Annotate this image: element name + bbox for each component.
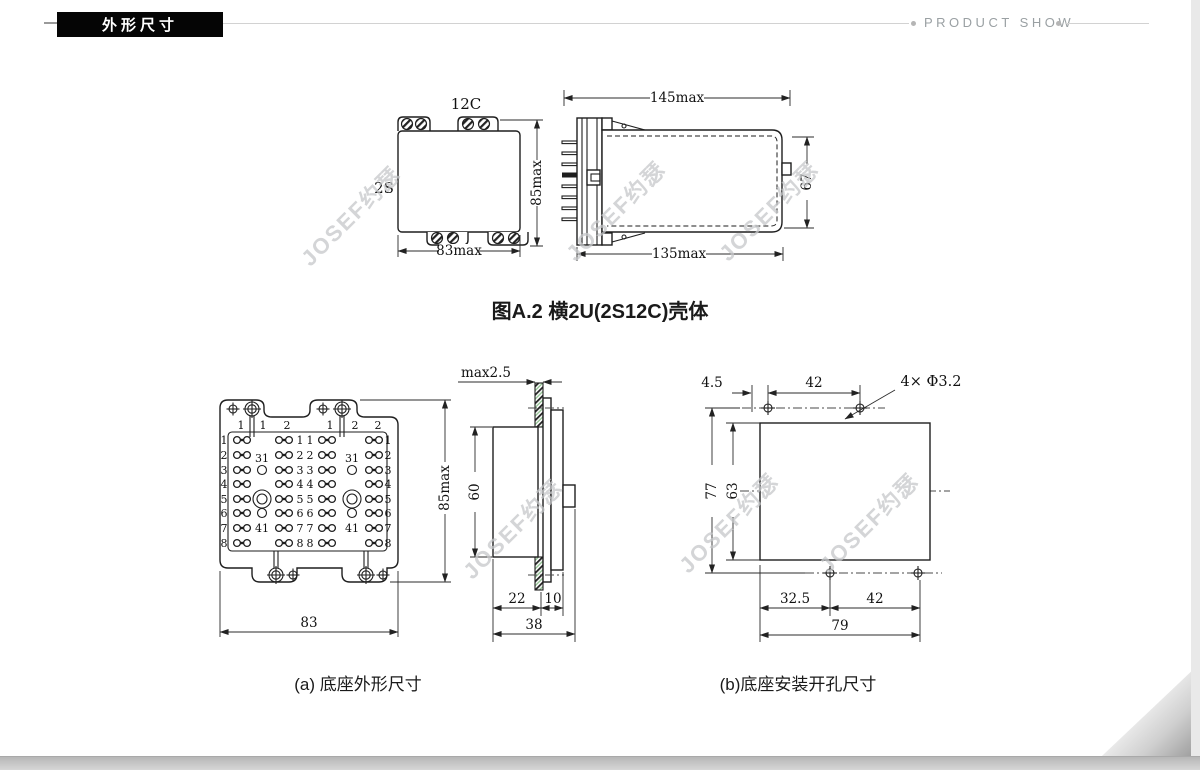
socket-side-drawing: max2.5 60 22 10 38 (450, 360, 625, 655)
cutout-rectangle (760, 423, 930, 560)
svg-text:8: 8 (221, 537, 228, 550)
caption-a: (a) 底座外形尺寸 (208, 670, 508, 695)
svg-text:1: 1 (297, 434, 304, 447)
svg-text:7: 7 (221, 522, 228, 535)
bullet-icon (1056, 21, 1061, 26)
svg-text:3: 3 (221, 464, 228, 477)
svg-text:4: 4 (385, 478, 392, 491)
dimension-max2-5: max2.5 (458, 365, 562, 382)
post-lower-label: 41 (255, 522, 269, 535)
socket-front-drawing: 1 1 2 1 2 2 1 1 1 1 2 2 2 2 3 3 (200, 385, 480, 650)
svg-text:6: 6 (221, 507, 228, 520)
dim-panel-label: max2.5 (461, 365, 511, 381)
holes-callout-label: 4× Φ3.2 (901, 374, 962, 390)
section-title-tag: 外形尺寸 (57, 12, 223, 37)
svg-text:1: 1 (307, 434, 314, 447)
dim-height-label: 85max (529, 160, 545, 206)
housing-side-body (577, 118, 791, 245)
svg-text:7: 7 (297, 522, 304, 535)
svg-text:7: 7 (307, 522, 314, 535)
dim-front-depth-label: 22 (508, 591, 525, 607)
svg-text:2: 2 (221, 449, 228, 462)
svg-text:1: 1 (221, 434, 228, 447)
dim-total-width-label: 79 (831, 618, 848, 634)
document-page: 外形尺寸 PRODUCT SHOW JOSEF约瑟 JOSEF约瑟 JOSEF约… (0, 0, 1200, 770)
svg-text:6: 6 (385, 507, 392, 520)
dim-length-top-label: 145max (650, 90, 705, 106)
dimension-67: 67 (784, 137, 815, 228)
post-upper-label: 31 (345, 452, 359, 465)
page-right-edge (1191, 0, 1200, 757)
svg-text:5: 5 (297, 493, 304, 506)
mounting-holes-drawing: 4.5 42 4× Φ3.2 77 63 32.5 42 79 (680, 360, 980, 655)
dim-side-height-label: 67 (799, 173, 815, 190)
socket-side-body (493, 398, 575, 582)
svg-text:5: 5 (307, 493, 314, 506)
svg-text:4: 4 (221, 478, 228, 491)
bullet-icon (911, 21, 916, 26)
dim-bottom-left-label: 32.5 (780, 591, 810, 607)
dimension-145max: 145max (564, 90, 790, 106)
col-header: 2 (375, 419, 382, 432)
svg-text:4: 4 (307, 478, 314, 491)
dim-edge-offset-label: 4.5 (701, 375, 722, 391)
svg-text:3: 3 (307, 464, 314, 477)
page-corner-curl (1099, 669, 1191, 757)
col-header: 1 (327, 419, 334, 432)
housing-side-drawing: 145max 135max 67 (550, 85, 835, 275)
dimension-60: 60 (467, 427, 492, 557)
housing-front-drawing: 12C 2S 83max 85max (370, 95, 565, 270)
svg-text:8: 8 (297, 537, 304, 550)
svg-text:2: 2 (297, 449, 304, 462)
svg-text:6: 6 (307, 507, 314, 520)
dim-height-label: 60 (467, 483, 483, 500)
svg-text:4: 4 (297, 478, 304, 491)
dimension-top: 4.5 42 4× Φ3.2 (701, 374, 961, 419)
svg-text:3: 3 (385, 464, 392, 477)
svg-text:8: 8 (385, 537, 392, 550)
svg-text:2: 2 (307, 449, 314, 462)
socket-outline (220, 400, 398, 584)
svg-text:5: 5 (385, 493, 392, 506)
product-show-label: PRODUCT SHOW (924, 15, 1074, 30)
housing-code-top-label: 12C (451, 95, 482, 113)
dimension-bottom: 32.5 42 79 (760, 565, 920, 642)
col-header: 2 (284, 419, 291, 432)
dim-total-depth-label: 38 (525, 617, 542, 633)
dimension-135max: 135max (577, 246, 783, 262)
col-header: 2 (352, 419, 359, 432)
caption-b: (b)底座安装开孔尺寸 (648, 670, 948, 695)
page-bottom-edge (0, 756, 1200, 770)
dim-socket-width-label: 83 (300, 615, 317, 631)
housing-side-pins (562, 141, 577, 221)
dim-top-spacing-label: 42 (805, 375, 822, 391)
post-lower-label: 41 (345, 522, 359, 535)
dim-bottom-spacing-label: 42 (866, 591, 883, 607)
svg-text:2: 2 (385, 449, 392, 462)
svg-text:8: 8 (307, 537, 314, 550)
header-rule-left (223, 23, 909, 24)
svg-text:5: 5 (221, 493, 228, 506)
post-upper-label: 31 (255, 452, 269, 465)
dim-width-label: 83max (436, 243, 482, 259)
header-left-dash (44, 22, 57, 24)
svg-text:6: 6 (297, 507, 304, 520)
col-header: 1 (238, 419, 245, 432)
housing-code-left-label: 2S (374, 179, 394, 197)
col-header: 1 (260, 419, 267, 432)
dim-outer-height-label: 77 (704, 482, 720, 499)
dim-inner-height-label: 63 (725, 482, 741, 499)
svg-text:3: 3 (297, 464, 304, 477)
svg-text:7: 7 (385, 522, 392, 535)
figure-a2-caption: 图A.2 横2U(2S12C)壳体 (420, 295, 780, 324)
svg-text:1: 1 (385, 434, 392, 447)
dim-rear-depth-label: 10 (544, 591, 561, 607)
housing-front-body (398, 117, 528, 245)
dim-length-bottom-label: 135max (652, 246, 707, 262)
header-rule-right (1065, 23, 1149, 24)
